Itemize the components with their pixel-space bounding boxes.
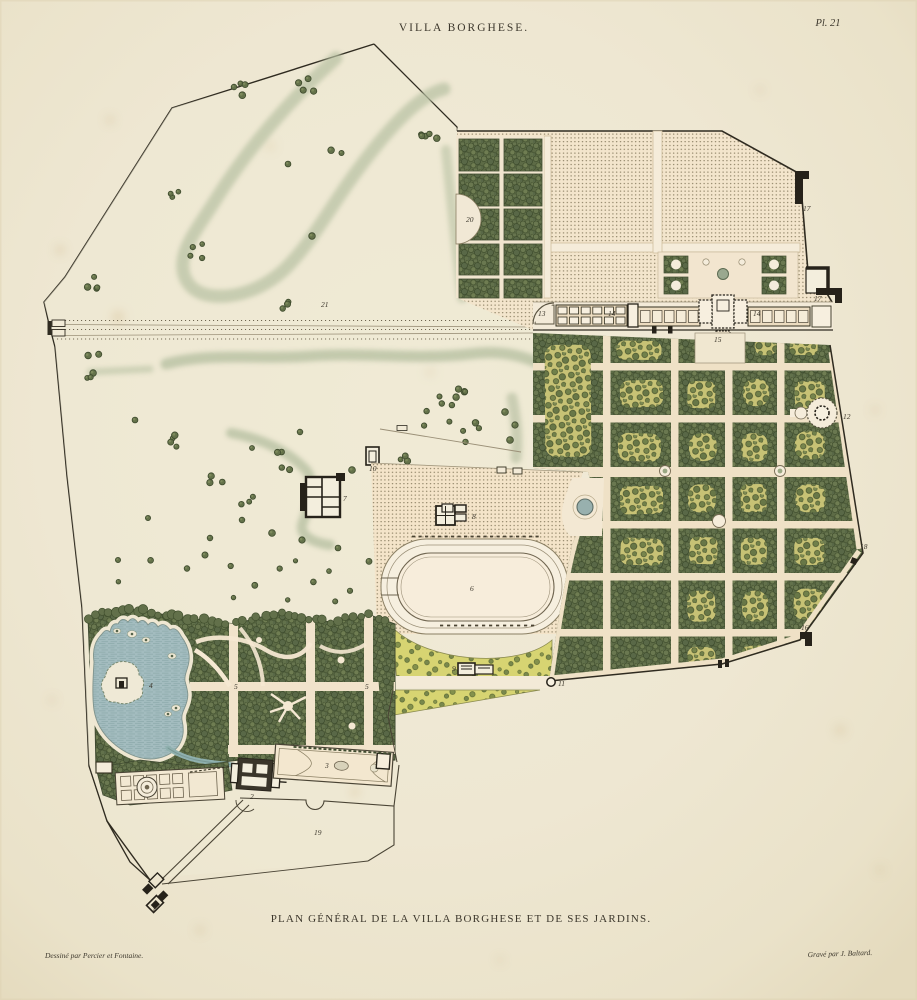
svg-text:12: 12	[843, 412, 851, 421]
svg-text:19: 19	[314, 828, 322, 837]
svg-text:4: 4	[149, 681, 153, 690]
svg-text:Pl. 21: Pl. 21	[814, 18, 840, 29]
svg-text:8: 8	[472, 512, 476, 521]
svg-text:5: 5	[365, 682, 369, 691]
svg-text:18: 18	[860, 542, 868, 551]
svg-text:21: 21	[321, 300, 329, 309]
svg-text:20: 20	[466, 215, 474, 224]
svg-text:14: 14	[753, 309, 761, 318]
svg-text:17: 17	[803, 204, 811, 213]
svg-text:10: 10	[369, 464, 377, 473]
svg-text:11: 11	[558, 679, 565, 688]
svg-text:7: 7	[343, 494, 347, 503]
svg-text:14: 14	[608, 309, 616, 318]
svg-text:13: 13	[538, 309, 546, 318]
svg-text:9: 9	[452, 664, 456, 673]
svg-text:5: 5	[234, 682, 238, 691]
svg-text:17: 17	[814, 294, 822, 303]
svg-text:3: 3	[324, 761, 329, 770]
svg-text:2: 2	[250, 792, 254, 801]
svg-text:Dessiné par Percier et Fontain: Dessiné par Percier et Fontaine.	[44, 951, 143, 960]
svg-text:1: 1	[152, 905, 156, 914]
svg-text:15: 15	[714, 335, 722, 344]
svg-text:PLAN GÉNÉRAL DE LA VILLA BORGH: PLAN GÉNÉRAL DE LA VILLA BORGHESE ET DE …	[271, 913, 652, 925]
svg-text:16: 16	[801, 623, 809, 632]
svg-text:6: 6	[470, 584, 474, 593]
svg-text:VILLA BORGHESE.: VILLA BORGHESE.	[399, 22, 529, 34]
